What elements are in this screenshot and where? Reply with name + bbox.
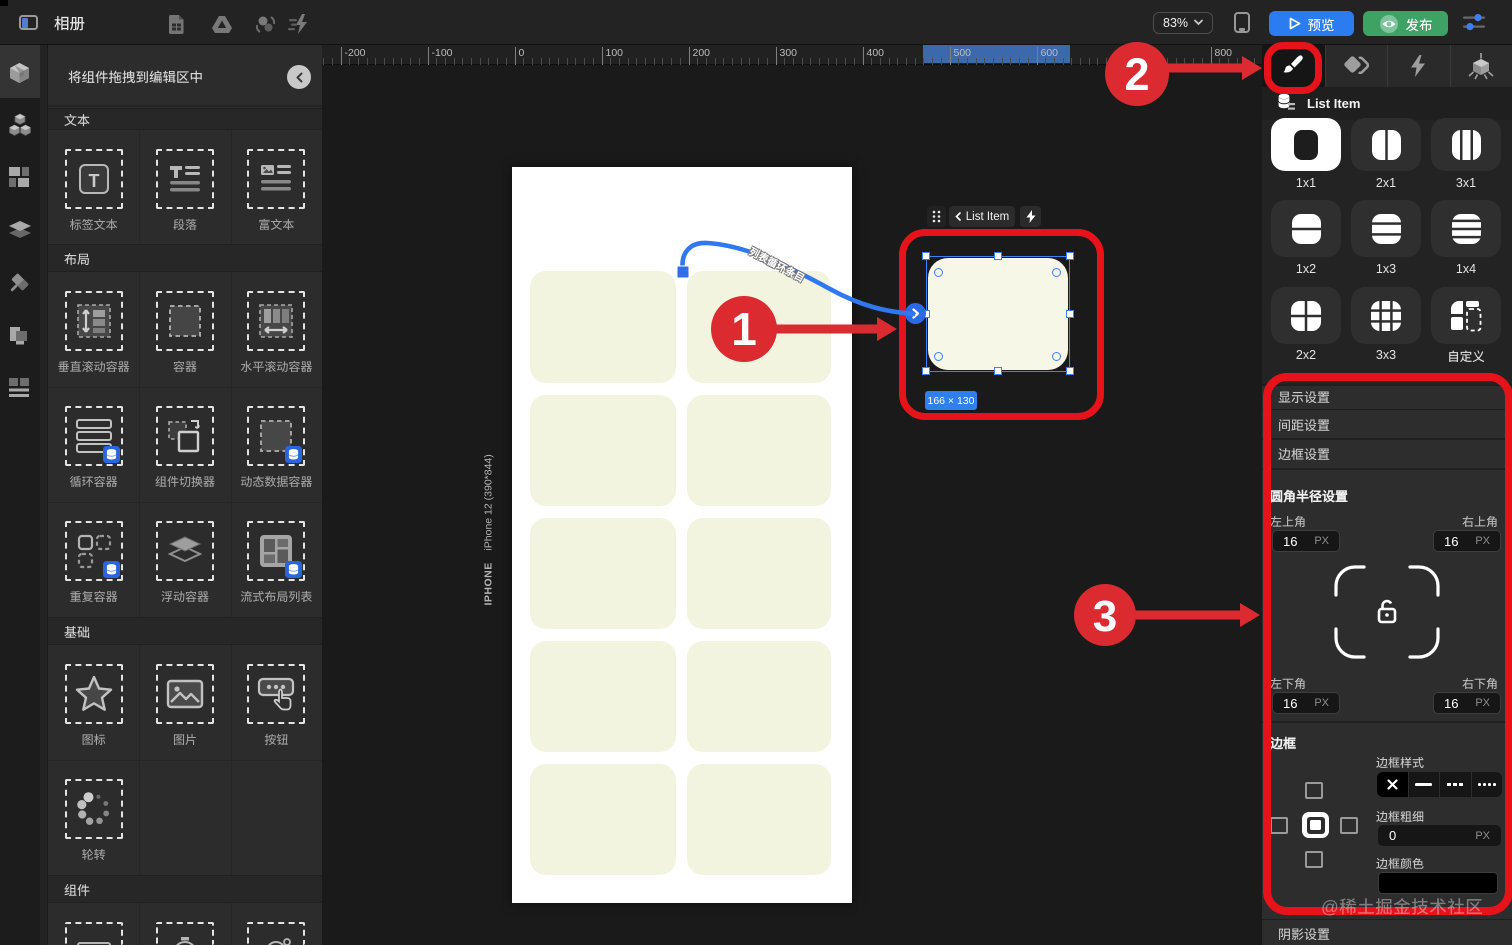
svg-text:3: 3 [1093,592,1117,641]
svg-text:T: T [88,171,99,191]
